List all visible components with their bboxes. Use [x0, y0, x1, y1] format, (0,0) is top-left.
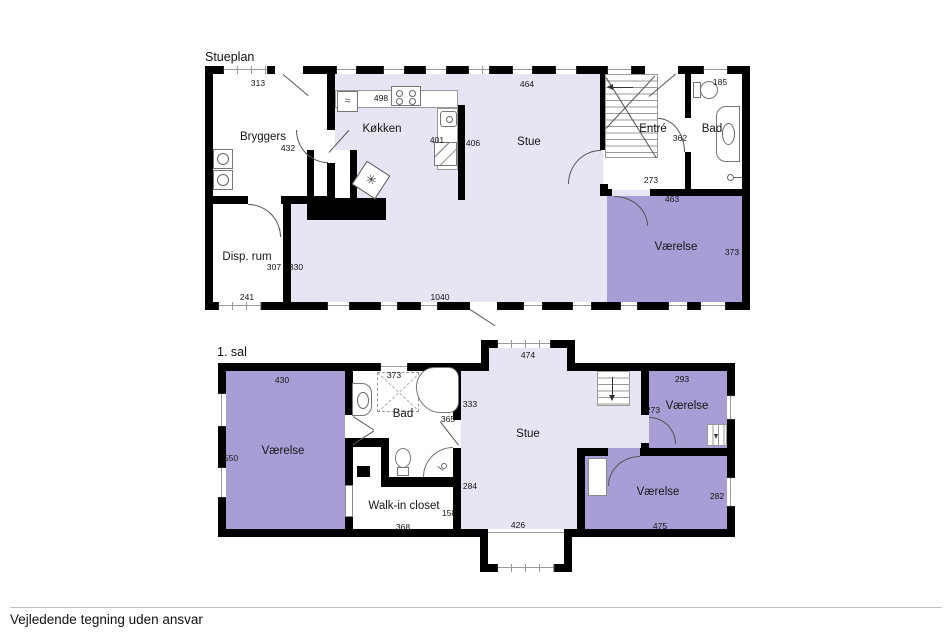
- window: [425, 66, 447, 74]
- door-opening-front-door: [645, 66, 678, 74]
- floor-title-first: 1. sal: [217, 345, 247, 359]
- room-label-entre: Entré: [639, 123, 667, 135]
- window: [468, 66, 490, 74]
- shower-head-icon: [727, 174, 734, 181]
- window: [383, 66, 405, 74]
- dim-label: 330: [289, 262, 303, 272]
- toilet-icon: [395, 448, 411, 468]
- wall-vaerelse-east: [345, 517, 353, 537]
- door-leaf: [470, 309, 496, 326]
- wall-outer-bottom: [564, 529, 735, 537]
- wall-entre-bad: [685, 66, 691, 118]
- window: [607, 66, 632, 74]
- window: [523, 302, 543, 310]
- door-opening-terrace: [470, 302, 497, 310]
- room-label-vaerelse-se: Værelse: [637, 486, 680, 498]
- window: [727, 395, 735, 420]
- wall-notch: [357, 466, 370, 477]
- closet-niche: [588, 458, 607, 496]
- room-label-bad-first: Bad: [393, 408, 413, 420]
- door-gap-fill: [641, 415, 649, 443]
- window: [620, 302, 638, 310]
- dim-label: 313: [251, 78, 265, 88]
- window: [700, 302, 726, 310]
- dim-label: 475: [653, 521, 667, 531]
- dim-label: 406: [466, 138, 480, 148]
- window: [555, 66, 577, 74]
- window-bay-bottom: [497, 564, 555, 572]
- window: [572, 302, 592, 310]
- wall-vaerelse-se-north: [640, 448, 735, 456]
- wall-outer-right: [742, 66, 750, 310]
- dishwasher-icon: ≈: [337, 91, 358, 112]
- room-label-stue-ground: Stue: [517, 136, 541, 148]
- dim-label: 284: [463, 481, 477, 491]
- wall-outer-left: [218, 363, 226, 537]
- dim-label: 365: [441, 414, 455, 424]
- wall-alcove-right: [350, 150, 357, 198]
- window: [512, 66, 533, 74]
- wall-disp-east: [283, 196, 291, 310]
- room-fill-stue-first: [461, 448, 577, 529]
- window: [218, 393, 226, 427]
- window: [218, 467, 226, 498]
- window: [336, 66, 357, 74]
- dim-label: 273: [646, 405, 660, 415]
- footer-divider: [10, 607, 942, 608]
- room-label-bryggers: Bryggers: [240, 131, 286, 143]
- wall-vaerelse-east: [345, 445, 353, 485]
- dim-label: 498: [374, 93, 388, 103]
- bay-opening: [488, 529, 564, 537]
- dim-label: 474: [521, 350, 535, 360]
- dim-label: 550: [224, 453, 238, 463]
- disclaimer-text: Vejledende tegning uden ansvar: [10, 612, 203, 627]
- stair-arrow-head: [609, 395, 615, 401]
- dim-label: 1040: [431, 292, 450, 302]
- window: [703, 66, 728, 74]
- dim-label: 430: [275, 375, 289, 385]
- stair-arrow: [613, 87, 633, 88]
- window: [668, 302, 688, 310]
- dim-label: 373: [725, 247, 739, 257]
- dim-label: 368: [396, 522, 410, 532]
- dim-label: 401: [430, 135, 444, 145]
- wall-kokken-stue-stub: [458, 105, 465, 200]
- wall-outer-bottom: [218, 529, 488, 537]
- chimney-block: [307, 198, 386, 220]
- sink-icon: [440, 111, 457, 127]
- room-label-disp-rum: Disp. rum: [222, 251, 271, 263]
- room-label-vaerelse-ne: Værelse: [666, 400, 709, 412]
- window-bay-top: [497, 340, 551, 348]
- dim-label: 158: [442, 508, 456, 518]
- shower-head-icon: [734, 177, 742, 178]
- wall-bryggers-south: [205, 196, 248, 204]
- stair-arrow-head: [607, 84, 613, 90]
- door-gap-fill: [608, 448, 640, 456]
- stair-arrow-head: [714, 434, 718, 439]
- dim-label: 463: [665, 194, 679, 204]
- dim-label: 273: [644, 175, 658, 185]
- room-label-bad-ground: Bad: [702, 123, 722, 135]
- dryer-icon: [213, 170, 233, 190]
- room-label-stue-first: Stue: [516, 428, 540, 440]
- room-label-walkin: Walk-in closet: [368, 500, 439, 512]
- room-label-kokken: Køkken: [363, 123, 402, 135]
- floor-title-ground: Stueplan: [205, 50, 254, 64]
- stair-arrow: [612, 377, 613, 396]
- sink-icon: [352, 383, 372, 416]
- dim-label: 432: [281, 143, 295, 153]
- dim-label: 464: [520, 79, 534, 89]
- dim-label: 307: [267, 262, 281, 272]
- window: [223, 66, 268, 74]
- dim-label: 426: [511, 520, 525, 530]
- dishwasher-icon: [434, 142, 457, 166]
- window: [420, 302, 438, 310]
- dim-label: 185: [713, 77, 727, 87]
- dim-label: 373: [387, 370, 401, 380]
- room-label-vaerelse-ground: Værelse: [655, 241, 698, 253]
- wall-outer-top: [567, 363, 735, 371]
- bay-threshold: [488, 532, 564, 533]
- wall-vaerelse-north: [600, 189, 612, 196]
- room-label-vaerelse-left: Værelse: [262, 445, 305, 457]
- dim-label: 333: [463, 399, 477, 409]
- wall-walkin-north: [385, 477, 461, 487]
- window: [380, 302, 398, 310]
- toilet-icon: [397, 467, 409, 476]
- dim-label: 293: [675, 374, 689, 384]
- window: [327, 302, 350, 310]
- wall-bad-east: [453, 448, 461, 537]
- wall-vaerelse-se-west: [577, 448, 585, 537]
- wall-entre-bad: [685, 152, 691, 190]
- window: [218, 302, 262, 310]
- wall-outer-left: [205, 66, 213, 310]
- dim-label: 282: [710, 491, 724, 501]
- stove-icon: [391, 86, 421, 106]
- door-recess: [345, 485, 353, 517]
- wall-bryggers-east: [327, 66, 335, 130]
- washer-icon: [213, 149, 233, 169]
- dim-label: 241: [240, 292, 254, 302]
- dim-label: 362: [673, 133, 687, 143]
- window: [727, 477, 735, 507]
- door-opening-bryggers-entry: [275, 66, 303, 74]
